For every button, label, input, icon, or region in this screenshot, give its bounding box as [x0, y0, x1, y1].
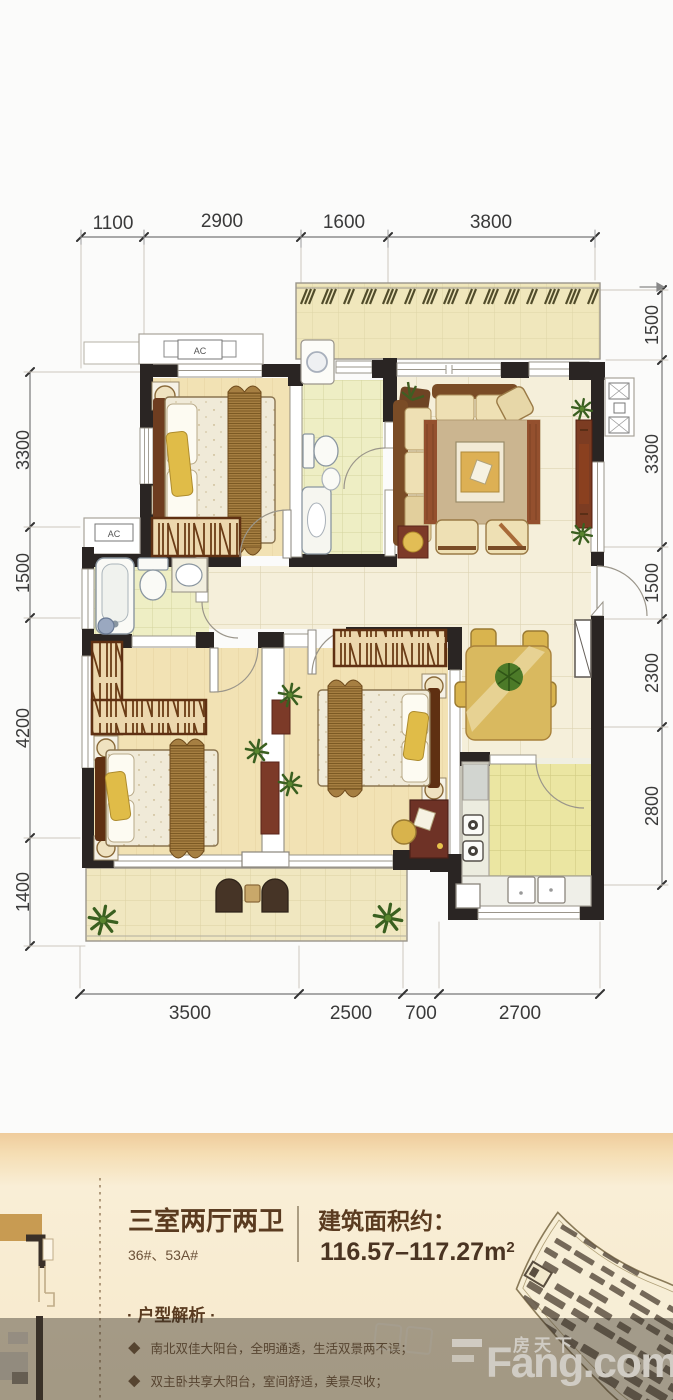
svg-text:1100: 1100	[93, 213, 134, 234]
svg-text:3500: 3500	[169, 1003, 211, 1024]
svg-text:3300: 3300	[13, 430, 33, 470]
svg-text:1400: 1400	[13, 872, 33, 912]
svg-text:3300: 3300	[642, 434, 662, 474]
svg-text:建筑面积约：: 建筑面积约：	[318, 1208, 456, 1234]
svg-text:2300: 2300	[642, 653, 662, 693]
svg-text:2800: 2800	[642, 786, 662, 826]
svg-text:2900: 2900	[201, 211, 243, 232]
svg-text:4200: 4200	[13, 708, 33, 748]
svg-text:36#、53A#: 36#、53A#	[128, 1247, 198, 1263]
svg-text:3800: 3800	[470, 212, 512, 233]
svg-text:700: 700	[405, 1003, 437, 1024]
svg-text:2500: 2500	[330, 1003, 372, 1024]
svg-text:三室两厅两卫: 三室两厅两卫	[128, 1206, 284, 1236]
svg-text:AC: AC	[194, 346, 207, 356]
svg-text:Fang.com: Fang.com	[486, 1339, 673, 1387]
svg-text:2700: 2700	[499, 1003, 541, 1024]
svg-text:1600: 1600	[323, 212, 365, 233]
svg-text:116.57–117.27m2: 116.57–117.27m2	[320, 1238, 515, 1266]
svg-text:AC: AC	[108, 529, 121, 539]
svg-text:1500: 1500	[13, 553, 33, 593]
svg-text:1500: 1500	[642, 563, 662, 603]
svg-text:1500: 1500	[642, 305, 662, 345]
